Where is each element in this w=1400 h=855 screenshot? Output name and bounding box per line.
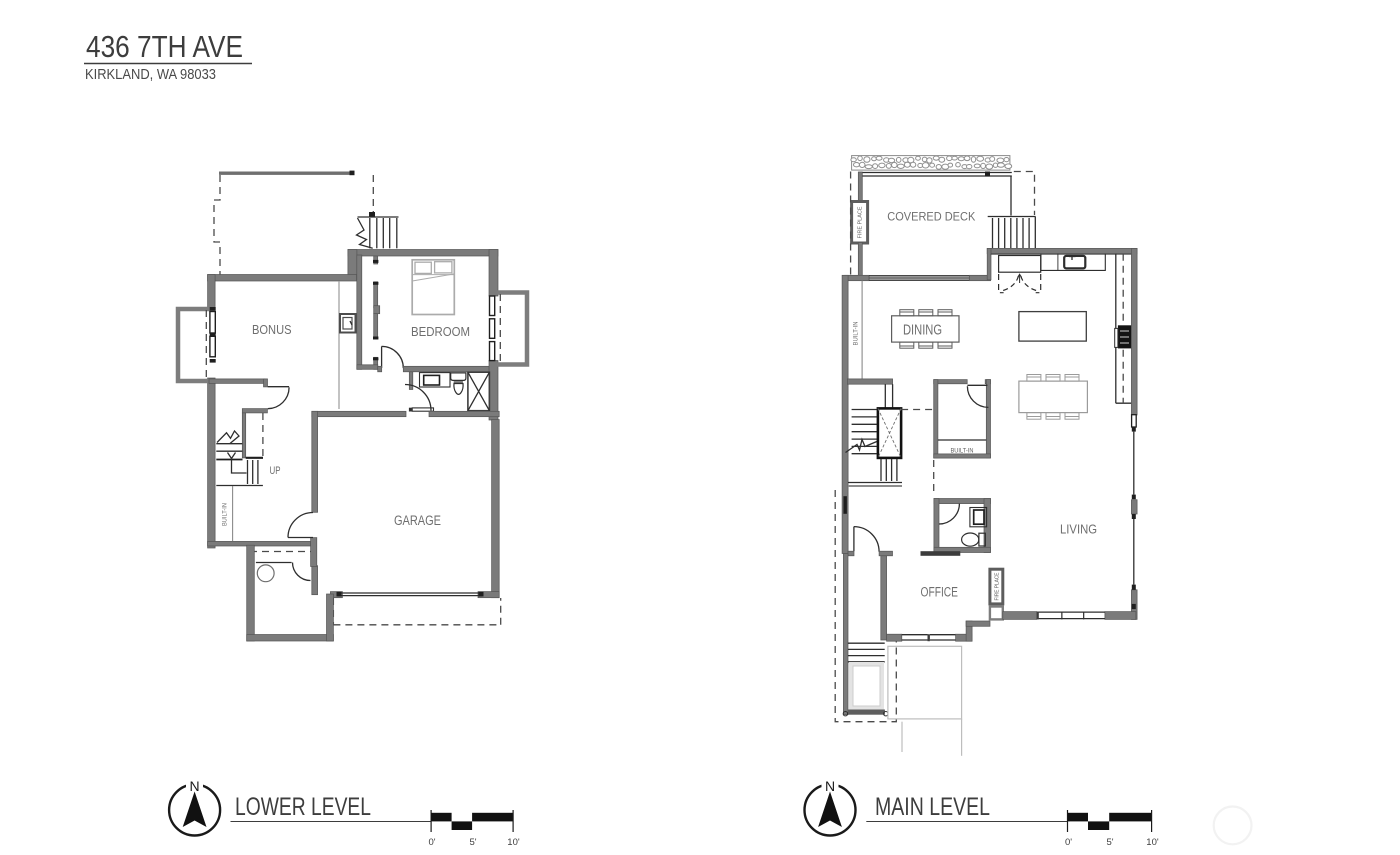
- svg-text:DINING: DINING: [903, 323, 942, 339]
- svg-text:KIRKLAND, WA 98033: KIRKLAND, WA 98033: [85, 67, 216, 83]
- svg-text:0': 0': [1065, 837, 1072, 848]
- svg-text:LIVING: LIVING: [1060, 522, 1097, 537]
- svg-text:BEDROOM: BEDROOM: [411, 324, 470, 339]
- svg-text:10': 10': [1146, 837, 1159, 848]
- svg-text:COVERED DECK: COVERED DECK: [887, 210, 975, 224]
- svg-text:UP: UP: [270, 465, 281, 477]
- svg-text:0': 0': [428, 837, 435, 848]
- svg-text:5': 5': [469, 837, 476, 848]
- svg-text:MAIN LEVEL: MAIN LEVEL: [875, 793, 990, 821]
- svg-text:BONUS: BONUS: [252, 322, 292, 337]
- svg-text:LOWER LEVEL: LOWER LEVEL: [235, 793, 371, 821]
- svg-text:10': 10': [507, 837, 520, 848]
- svg-text:BUILT-IN: BUILT-IN: [222, 503, 229, 526]
- svg-text:BUILT-IN: BUILT-IN: [853, 321, 860, 345]
- svg-text:FIRE PLACE: FIRE PLACE: [858, 206, 864, 238]
- svg-text:GARAGE: GARAGE: [394, 513, 441, 528]
- svg-text:BUILT-IN: BUILT-IN: [951, 448, 974, 455]
- svg-text:FIRE PLACE: FIRE PLACE: [994, 572, 1000, 600]
- svg-text:436 7TH AVE: 436 7TH AVE: [86, 29, 243, 64]
- svg-text:OFFICE: OFFICE: [921, 585, 959, 600]
- svg-text:5': 5': [1106, 837, 1113, 848]
